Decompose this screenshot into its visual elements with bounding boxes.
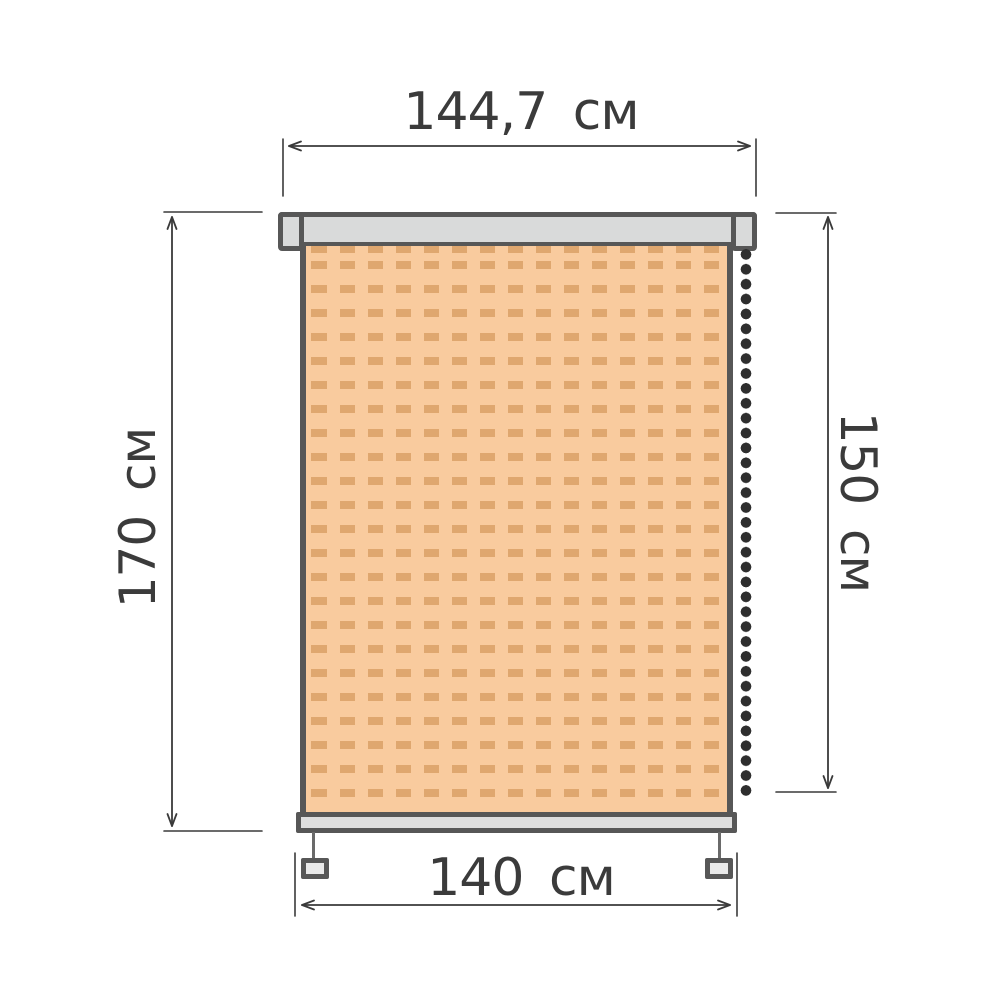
weight-cord-left (312, 832, 315, 860)
top-width-label: 144,7 см (403, 86, 638, 138)
right-height-dimension-lines (776, 213, 836, 792)
cassette-end-cap-right (731, 212, 757, 251)
left-height-label: 170 см (113, 428, 163, 609)
fabric-panel (300, 246, 733, 814)
weight-cord-right (718, 832, 721, 860)
fixing-weight-right (705, 858, 733, 879)
bottom-width-label: 140 см (427, 852, 615, 904)
fixing-weight-left (301, 858, 329, 879)
roller-blind-dimension-diagram: 144,7 см 170 см 150 см 140 см (0, 0, 1000, 1000)
right-height-label: 150 см (833, 412, 883, 593)
top-width-dimension-lines (283, 139, 756, 196)
bead-chain (740, 247, 752, 798)
left-height-dimension-lines (164, 212, 262, 831)
bottom-weight-bar (296, 812, 737, 833)
cassette-top-bar (278, 212, 757, 247)
